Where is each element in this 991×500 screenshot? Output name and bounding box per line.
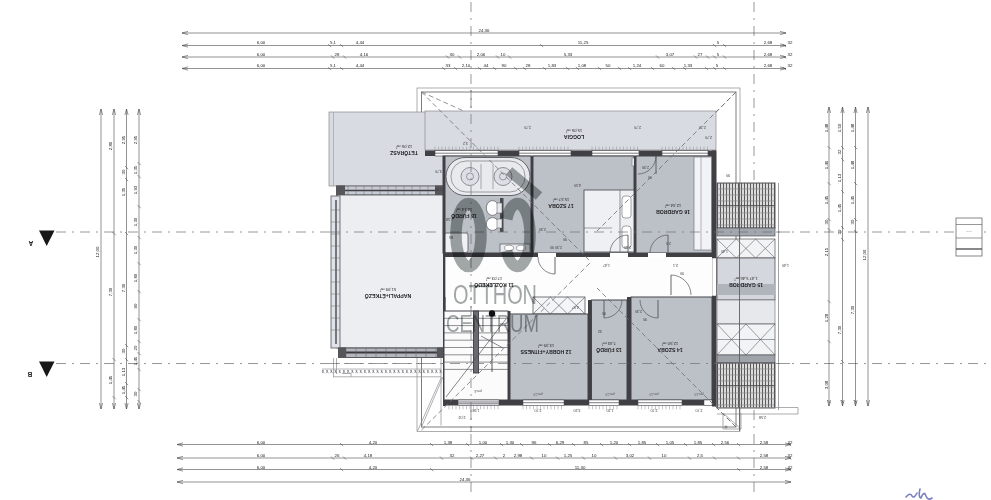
svg-text:7,30: 7,30: [121, 283, 126, 292]
svg-text:4,50: 4,50: [574, 183, 581, 187]
svg-text:10: 10: [662, 453, 667, 458]
svg-text:1,85: 1,85: [638, 440, 647, 445]
svg-text:2,68: 2,68: [764, 40, 773, 45]
svg-text:30: 30: [121, 348, 126, 353]
svg-text:3,2: 3,2: [463, 141, 468, 145]
svg-text:1,05: 1,05: [666, 440, 675, 445]
svg-text:3,70: 3,70: [435, 169, 442, 173]
svg-text:pm-10: pm-10: [605, 392, 614, 396]
svg-text:32: 32: [598, 329, 602, 333]
svg-text:2,70: 2,70: [651, 408, 658, 412]
svg-text:20: 20: [133, 345, 138, 350]
svg-text:90: 90: [563, 237, 567, 241]
svg-text:2,70: 2,70: [696, 408, 703, 412]
svg-text:1,33: 1,33: [684, 63, 693, 68]
svg-text:2,30: 2,30: [642, 165, 649, 169]
svg-text:1,00: 1,00: [479, 440, 488, 445]
svg-text:1,47: 1,47: [603, 263, 610, 267]
svg-text:32: 32: [788, 40, 793, 45]
svg-text:32: 32: [788, 52, 793, 57]
svg-text:1,45: 1,45: [121, 385, 126, 394]
svg-text:2,56: 2,56: [721, 440, 730, 445]
svg-text:7,30: 7,30: [108, 287, 113, 296]
svg-text:17 SZOBA: 17 SZOBA: [548, 203, 574, 209]
svg-text:2,0: 2,0: [666, 241, 671, 245]
svg-text:12 HOBBY+FITNESS: 12 HOBBY+FITNESS: [520, 349, 571, 355]
svg-text:32: 32: [837, 149, 842, 154]
svg-text:5,1: 5,1: [330, 40, 337, 45]
svg-text:1,80: 1,80: [133, 325, 138, 334]
svg-text:2,40: 2,40: [624, 245, 631, 249]
svg-text:30: 30: [121, 169, 126, 174]
svg-text:1,50: 1,50: [837, 123, 842, 132]
svg-text:1,20: 1,20: [610, 440, 619, 445]
svg-text:~~~: ~~~: [966, 230, 972, 234]
svg-text:15,06 m²: 15,06 m²: [565, 128, 582, 133]
svg-text:12,34 m²: 12,34 m²: [664, 203, 681, 208]
svg-text:2,58: 2,58: [760, 440, 769, 445]
svg-text:4,16: 4,16: [360, 52, 369, 57]
svg-text:1,05: 1,05: [435, 187, 442, 191]
svg-text:4,07: 4,07: [572, 305, 579, 309]
svg-text:2,10: 2,10: [462, 63, 471, 68]
svg-text:A: A: [28, 240, 33, 247]
svg-text:10: 10: [542, 453, 547, 458]
svg-text:85: 85: [584, 440, 589, 445]
svg-text:2,95: 2,95: [133, 135, 138, 144]
svg-text:90: 90: [133, 303, 138, 308]
svg-text:32: 32: [788, 465, 793, 470]
svg-text:44: 44: [484, 63, 489, 68]
svg-text:30: 30: [850, 219, 855, 224]
svg-text:1,45: 1,45: [133, 356, 138, 365]
svg-text:pm-6: pm-6: [474, 389, 481, 393]
svg-text:28: 28: [335, 52, 340, 57]
svg-text:90: 90: [502, 63, 507, 68]
svg-text:4,44: 4,44: [356, 40, 365, 45]
svg-text:1,13: 1,13: [837, 173, 842, 182]
svg-text:1,45: 1,45: [108, 375, 113, 384]
svg-text:6,00: 6,00: [257, 40, 266, 45]
svg-text:1,25: 1,25: [564, 453, 573, 458]
svg-text:OTTHON: OTTHON: [453, 280, 537, 310]
svg-text:1,46: 1,46: [824, 160, 829, 169]
svg-text:2,58: 2,58: [760, 465, 769, 470]
svg-text:6,00: 6,00: [257, 465, 266, 470]
svg-text:1,45: 1,45: [850, 195, 855, 204]
svg-text:1,08: 1,08: [578, 63, 587, 68]
svg-text:2,58: 2,58: [760, 453, 769, 458]
svg-text:1,48: 1,48: [824, 123, 829, 132]
svg-text:1,85: 1,85: [694, 440, 703, 445]
svg-text:LOGGIA: LOGGIA: [564, 134, 585, 140]
svg-text:1,38: 1,38: [444, 440, 453, 445]
svg-text:2,68: 2,68: [764, 52, 773, 57]
svg-text:2,98: 2,98: [514, 453, 523, 458]
svg-text:pm-10: pm-10: [649, 392, 658, 396]
svg-text:4,18: 4,18: [364, 453, 373, 458]
svg-text:27: 27: [698, 52, 703, 57]
svg-text:12,50 m²: 12,50 m²: [661, 341, 678, 346]
svg-text:90: 90: [643, 317, 647, 321]
svg-text:1,35: 1,35: [121, 187, 126, 196]
svg-text:96: 96: [532, 440, 537, 445]
svg-text:1,24: 1,24: [633, 63, 642, 68]
svg-text:90: 90: [550, 245, 554, 249]
svg-text:2,58: 2,58: [759, 415, 766, 419]
svg-text:13 FÜRDŐ: 13 FÜRDŐ: [596, 347, 622, 353]
svg-text:5,33: 5,33: [564, 52, 573, 57]
svg-text:pm-10: pm-10: [533, 392, 542, 396]
svg-text:11,30: 11,30: [575, 465, 586, 470]
svg-text:2,30: 2,30: [555, 245, 562, 249]
svg-text:2,1: 2,1: [673, 263, 678, 267]
svg-text:1,40: 1,40: [721, 249, 728, 253]
svg-text:1,45: 1,45: [837, 203, 842, 212]
svg-text:2,30: 2,30: [635, 309, 642, 313]
svg-text:33: 33: [446, 63, 451, 68]
svg-text:3,07: 3,07: [666, 52, 675, 57]
svg-text:2,68: 2,68: [764, 63, 773, 68]
svg-text:6,00: 6,00: [257, 453, 266, 458]
svg-text:32: 32: [450, 453, 455, 458]
svg-text:2,95: 2,95: [121, 135, 126, 144]
svg-text:1,28: 1,28: [824, 313, 829, 322]
svg-text:1,80: 1,80: [133, 273, 138, 282]
svg-text:60: 60: [660, 63, 665, 68]
svg-text:1,30: 1,30: [506, 440, 515, 445]
svg-text:1,30: 1,30: [133, 217, 138, 226]
svg-text:1,40: 1,40: [782, 263, 789, 267]
svg-text:28: 28: [526, 63, 531, 68]
svg-text:26: 26: [335, 453, 340, 458]
svg-text:1,83: 1,83: [548, 63, 557, 68]
svg-text:2,70: 2,70: [705, 135, 712, 139]
svg-text:2,70: 2,70: [634, 125, 641, 129]
svg-text:30: 30: [450, 52, 455, 57]
svg-text:2,30: 2,30: [539, 227, 546, 231]
svg-text:30: 30: [837, 229, 842, 234]
svg-text:1,48: 1,48: [850, 160, 855, 169]
svg-text:12,00: 12,00: [95, 246, 100, 258]
svg-text:4,20: 4,20: [369, 465, 378, 470]
svg-text:7,30: 7,30: [850, 305, 855, 314]
svg-text:7,43 m²: 7,43 m²: [601, 341, 616, 346]
svg-text:32: 32: [788, 453, 793, 458]
svg-text:4,44: 4,44: [356, 63, 365, 68]
svg-text:11,25: 11,25: [578, 40, 589, 45]
svg-text:32: 32: [788, 63, 793, 68]
svg-text:90: 90: [602, 311, 606, 315]
svg-text:6,00: 6,00: [257, 440, 266, 445]
svg-text:TETŐRASZ: TETŐRASZ: [389, 150, 418, 156]
svg-text:50: 50: [606, 63, 611, 68]
svg-text:3,08: 3,08: [824, 380, 829, 389]
svg-text:NAPPALI+ÉTKEZŐ: NAPPALI+ÉTKEZŐ: [365, 293, 411, 300]
svg-text:90: 90: [726, 173, 730, 177]
svg-text:7,30: 7,30: [837, 325, 842, 334]
svg-text:30: 30: [824, 219, 829, 224]
svg-text:10: 10: [592, 453, 597, 458]
svg-text:32: 32: [788, 440, 793, 445]
svg-text:24,36: 24,36: [479, 28, 491, 33]
svg-text:2,06: 2,06: [477, 52, 486, 57]
svg-text:1,35: 1,35: [133, 165, 138, 174]
svg-text:10: 10: [501, 52, 506, 57]
svg-text:B: B: [27, 371, 32, 378]
svg-text:2,27: 2,27: [476, 453, 485, 458]
svg-text:51,99 m²: 51,99 m²: [379, 287, 396, 292]
svg-text:2,5: 2,5: [697, 453, 704, 458]
svg-text:1,13: 1,13: [121, 367, 126, 376]
svg-text:1,30: 1,30: [133, 245, 138, 254]
svg-text:2,02: 2,02: [459, 415, 466, 419]
svg-text:30: 30: [133, 391, 138, 396]
svg-text:1,47 5,46 m²: 1,47 5,46 m²: [734, 276, 758, 281]
svg-text:16 GARDROB: 16 GARDROB: [656, 209, 690, 215]
svg-text:15 GARDROB: 15 GARDROB: [729, 282, 763, 288]
svg-text:2,70: 2,70: [524, 125, 531, 129]
svg-text:2,86: 2,86: [108, 141, 113, 150]
svg-text:2,15: 2,15: [824, 247, 829, 256]
svg-text:3,02: 3,02: [626, 453, 635, 458]
svg-text:1,45: 1,45: [824, 195, 829, 204]
svg-text:1,93: 1,93: [133, 185, 138, 194]
svg-text:12,06: 12,06: [862, 249, 867, 261]
svg-text:15,57 m²: 15,57 m²: [552, 197, 569, 202]
svg-text:24,36: 24,36: [460, 477, 472, 482]
svg-text:3,20: 3,20: [574, 408, 581, 412]
svg-text:5,1: 5,1: [330, 63, 337, 68]
svg-text:12,06 m²: 12,06 m²: [395, 144, 412, 149]
svg-text:CENTRUM: CENTRUM: [446, 310, 539, 337]
svg-text:6,29: 6,29: [556, 440, 565, 445]
svg-text:13,39 m²: 13,39 m²: [537, 343, 554, 348]
svg-text:1,48: 1,48: [850, 123, 855, 132]
svg-text:6,00: 6,00: [257, 52, 266, 57]
svg-text:4,20: 4,20: [369, 440, 378, 445]
svg-text:6,00: 6,00: [257, 63, 266, 68]
svg-text:90: 90: [680, 271, 684, 275]
